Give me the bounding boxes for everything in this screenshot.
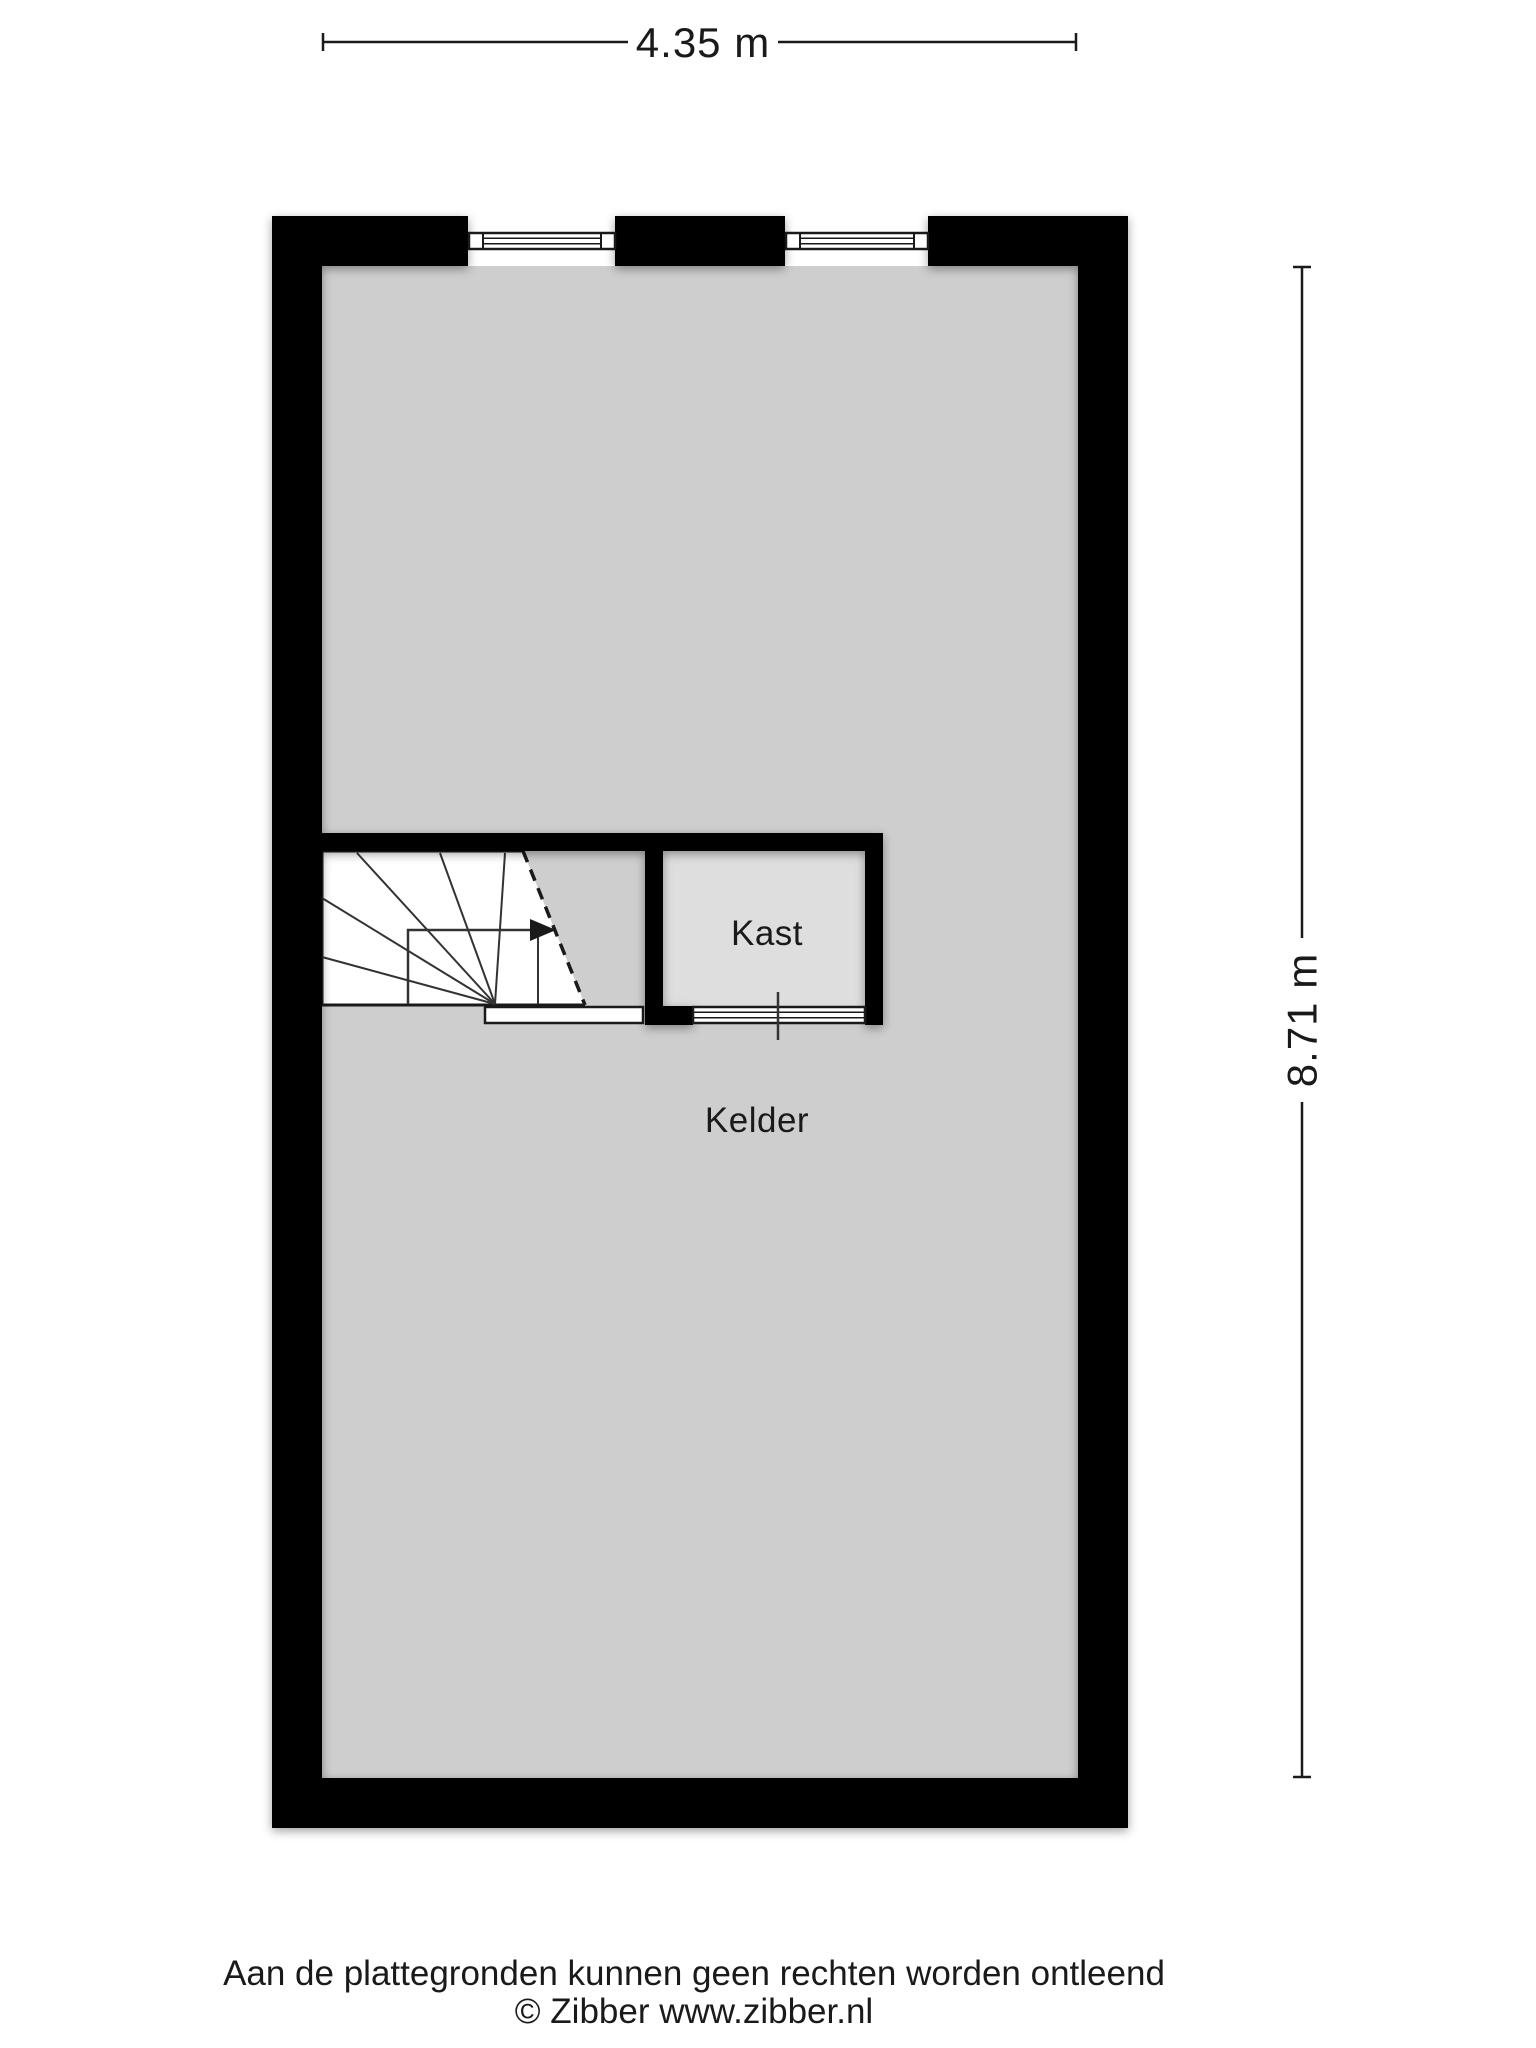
right-wall <box>1078 216 1128 1828</box>
disclaimer-text: Aan de plattegronden kunnen geen rechten… <box>223 1954 1165 1993</box>
enclosure-top-wall <box>290 833 883 851</box>
kast-room-label: Kast <box>731 914 803 953</box>
kast-left-wall <box>645 833 663 1025</box>
top-dimension-label: 4.35 m <box>636 19 770 66</box>
window-2-icon <box>786 233 928 249</box>
floorplan-page: Kast Kelder 4.35 m 8.71 m Aan de platteg… <box>0 0 1536 2048</box>
kast-right-wall <box>865 833 883 1025</box>
left-wall <box>272 216 322 1828</box>
top-wall-segment-middle <box>615 216 785 266</box>
stairs-landing-step <box>485 1007 643 1023</box>
kelder-room-label: Kelder <box>705 1101 809 1140</box>
floorplan-drawing: Kast Kelder 4.35 m 8.71 m Aan de platteg… <box>0 0 1536 2048</box>
kast-bottom-wall-stub <box>663 1006 693 1025</box>
bottom-wall <box>272 1778 1128 1828</box>
right-dimension-label: 8.71 m <box>1279 953 1326 1087</box>
window-1-icon <box>469 233 615 249</box>
copyright-text: © Zibber www.zibber.nl <box>515 1992 873 2031</box>
